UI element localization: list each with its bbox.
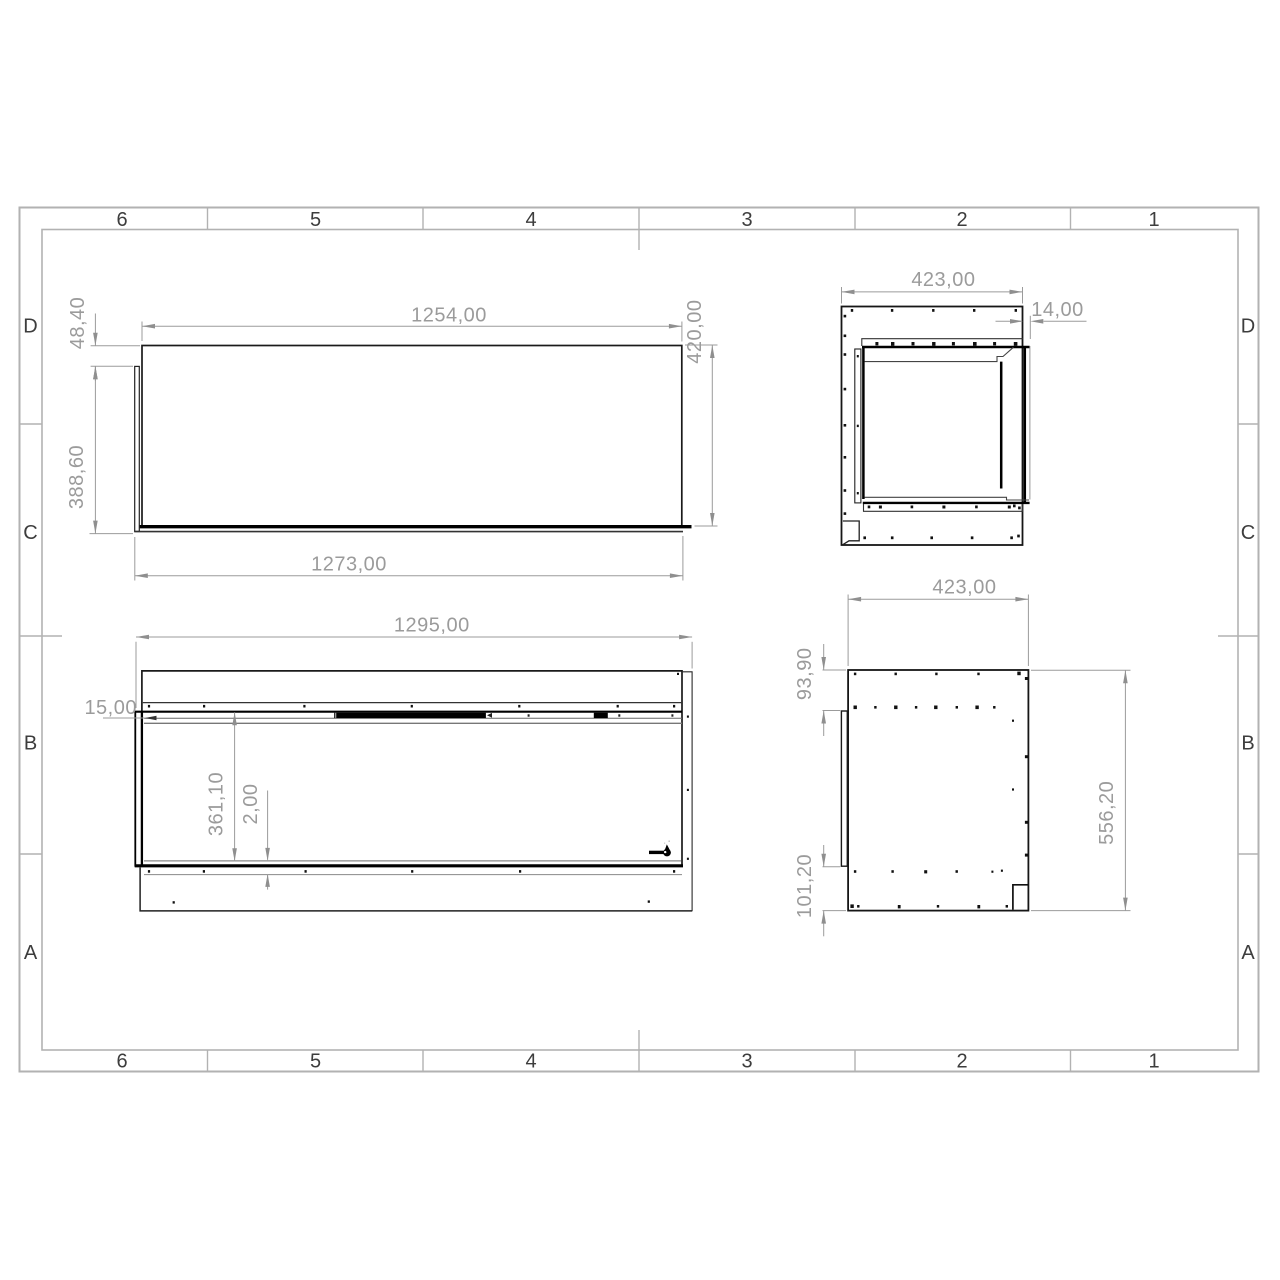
svg-text:B: B (24, 733, 37, 755)
svg-text:D: D (1241, 316, 1255, 338)
svg-text:6: 6 (116, 209, 127, 231)
svg-text:93,90: 93,90 (794, 648, 816, 701)
svg-text:14,00: 14,00 (1031, 299, 1084, 321)
svg-text:1273,00: 1273,00 (311, 554, 387, 576)
svg-text:1: 1 (1148, 209, 1159, 231)
svg-text:423,00: 423,00 (911, 269, 975, 291)
svg-text:1: 1 (1148, 1051, 1159, 1073)
svg-text:1295,00: 1295,00 (394, 614, 470, 636)
svg-text:6: 6 (116, 1051, 127, 1073)
svg-text:101,20: 101,20 (794, 854, 816, 918)
svg-text:1254,00: 1254,00 (411, 305, 487, 327)
svg-text:2: 2 (956, 1051, 967, 1073)
svg-text:A: A (1241, 942, 1255, 964)
svg-text:D: D (23, 316, 37, 338)
svg-text:5: 5 (310, 209, 321, 231)
svg-text:361,10: 361,10 (206, 772, 228, 836)
svg-text:A: A (24, 942, 38, 964)
svg-text:5: 5 (310, 1051, 321, 1073)
svg-text:15,00: 15,00 (84, 697, 137, 719)
svg-text:420,00: 420,00 (684, 300, 706, 364)
svg-text:4: 4 (525, 209, 536, 231)
svg-text:C: C (23, 522, 37, 544)
svg-text:4: 4 (525, 1051, 536, 1073)
svg-text:C: C (1241, 522, 1255, 544)
svg-text:2: 2 (956, 209, 967, 231)
svg-text:3: 3 (741, 1051, 752, 1073)
svg-text:48,40: 48,40 (67, 297, 89, 350)
svg-text:388,60: 388,60 (66, 445, 88, 509)
svg-text:556,20: 556,20 (1096, 781, 1118, 845)
svg-text:423,00: 423,00 (932, 577, 996, 599)
svg-text:B: B (1241, 733, 1254, 755)
svg-text:3: 3 (741, 209, 752, 231)
svg-text:2,00: 2,00 (240, 784, 262, 825)
